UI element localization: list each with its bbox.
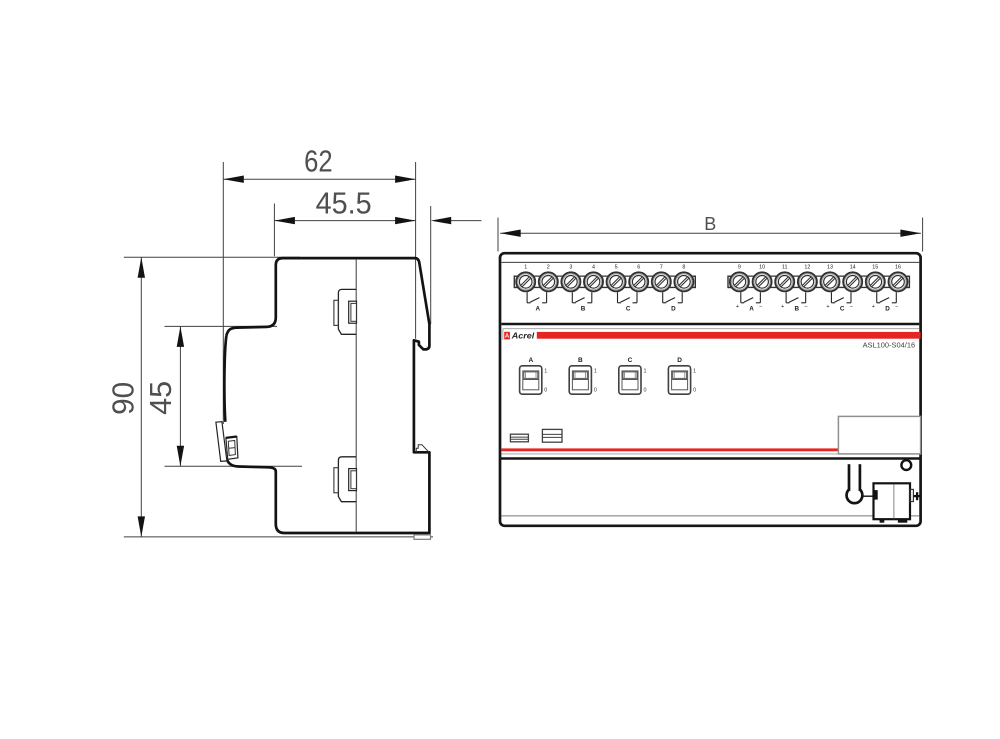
svg-text:0: 0 <box>644 388 647 394</box>
svg-text:9: 9 <box>738 264 741 270</box>
svg-text:C: C <box>626 305 631 312</box>
svg-text:0: 0 <box>693 388 696 394</box>
svg-text:7: 7 <box>660 264 663 270</box>
svg-text:+: + <box>736 304 740 310</box>
svg-text:1: 1 <box>544 368 547 374</box>
svg-text:B: B <box>578 357 583 364</box>
svg-text:C: C <box>628 357 633 364</box>
svg-text:45: 45 <box>143 381 178 415</box>
svg-text:B: B <box>581 305 586 312</box>
svg-text:−: − <box>895 304 899 310</box>
svg-text:3: 3 <box>569 264 572 270</box>
svg-text:1: 1 <box>594 368 597 374</box>
svg-text:B: B <box>704 214 716 234</box>
svg-text:2: 2 <box>547 264 550 270</box>
svg-text:16: 16 <box>895 264 901 270</box>
svg-text:1: 1 <box>524 264 527 270</box>
svg-text:4: 4 <box>592 264 595 270</box>
svg-text:12: 12 <box>804 264 810 270</box>
svg-text:15: 15 <box>872 264 878 270</box>
svg-text:8: 8 <box>682 264 685 270</box>
svg-text:A: A <box>528 357 533 364</box>
svg-text:−: − <box>850 304 854 310</box>
svg-text:14: 14 <box>850 264 856 270</box>
svg-text:C: C <box>840 305 845 312</box>
svg-text:13: 13 <box>827 264 833 270</box>
svg-text:11: 11 <box>782 264 788 270</box>
svg-text:10: 10 <box>759 264 765 270</box>
svg-text:90: 90 <box>106 382 141 415</box>
svg-text:D: D <box>885 305 890 312</box>
svg-text:1: 1 <box>693 368 696 374</box>
svg-text:0: 0 <box>544 388 547 394</box>
svg-text:B: B <box>795 305 800 312</box>
svg-text:+: + <box>781 304 785 310</box>
svg-text:1: 1 <box>644 368 647 374</box>
svg-text:A: A <box>749 305 754 312</box>
svg-text:6: 6 <box>637 264 640 270</box>
svg-text:45.5: 45.5 <box>316 186 372 221</box>
svg-text:5: 5 <box>615 264 618 270</box>
svg-text:62: 62 <box>304 144 333 179</box>
svg-text:Acrel: Acrel <box>511 330 535 340</box>
svg-text:D: D <box>677 357 682 364</box>
svg-text:A: A <box>536 305 541 312</box>
svg-text:0: 0 <box>594 388 597 394</box>
svg-text:ASL100-S04/16: ASL100-S04/16 <box>863 342 916 349</box>
svg-text:D: D <box>671 305 676 312</box>
